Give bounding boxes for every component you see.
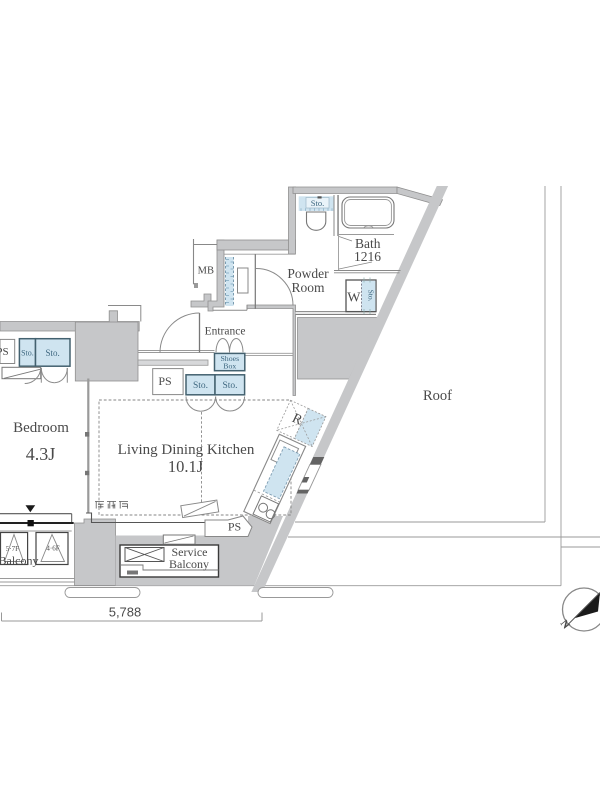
svg-text:Living Dining Kitchen: Living Dining Kitchen — [118, 442, 255, 458]
svg-text:Bedroom: Bedroom — [13, 420, 69, 436]
svg-text:Sto.: Sto. — [45, 348, 59, 358]
svg-text:Sto.: Sto. — [222, 381, 237, 391]
svg-text:Balcony: Balcony — [0, 554, 39, 568]
svg-text:Roof: Roof — [423, 388, 452, 404]
svg-text:MB: MB — [198, 265, 214, 276]
svg-text:5·7F: 5·7F — [6, 545, 19, 553]
svg-text:Room: Room — [291, 280, 325, 295]
svg-text:4.3J: 4.3J — [26, 444, 56, 464]
svg-text:Sto.: Sto. — [21, 349, 34, 358]
svg-text:Powder: Powder — [287, 266, 329, 281]
svg-text:PS: PS — [0, 346, 9, 358]
svg-text:Sto.: Sto. — [311, 198, 324, 208]
svg-text:5,788: 5,788 — [109, 605, 142, 620]
svg-text:Sto.: Sto. — [193, 381, 208, 391]
svg-text:Balcony: Balcony — [169, 557, 209, 571]
svg-text:Entrance: Entrance — [205, 326, 246, 338]
svg-text:W: W — [347, 291, 361, 306]
svg-text:PS: PS — [228, 519, 241, 533]
svg-text:10.1J: 10.1J — [168, 457, 204, 476]
svg-text:Sto.: Sto. — [367, 290, 376, 302]
svg-text:PS: PS — [158, 374, 171, 388]
svg-text:4·6F: 4·6F — [46, 545, 59, 553]
svg-text:1216: 1216 — [354, 249, 381, 264]
svg-text:Box: Box — [223, 362, 236, 371]
